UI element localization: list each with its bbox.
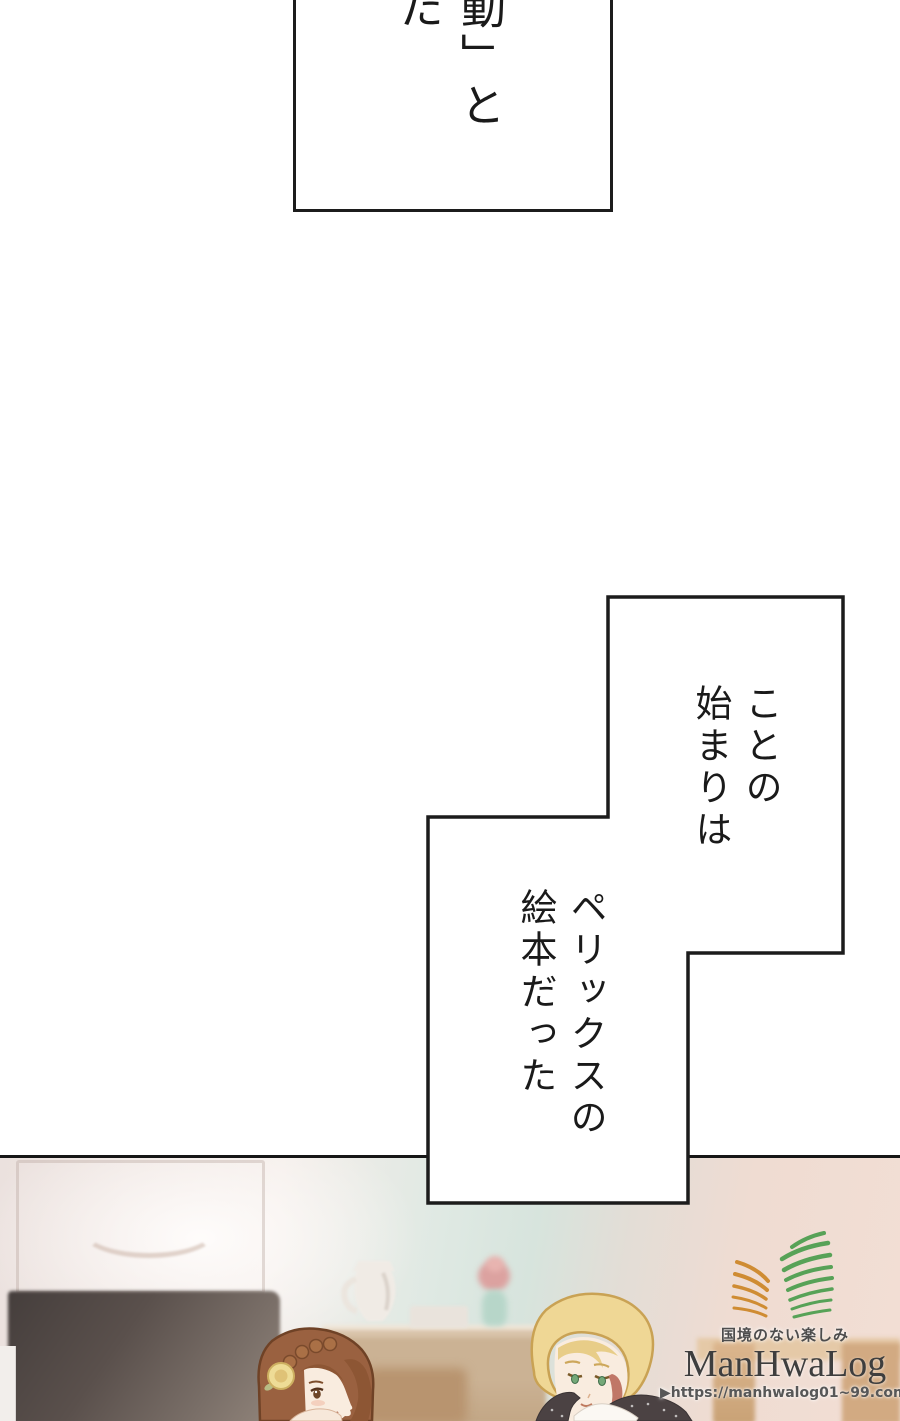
webtoon-page: 国境のない楽しみ ManHwaLog ▶https://manhwalog01~… bbox=[0, 0, 900, 1421]
dialogue-text-upper: ことの 始まりは bbox=[685, 684, 785, 884]
white-dresser-edge bbox=[0, 1346, 16, 1421]
wall-wreath-decoration bbox=[80, 1202, 218, 1258]
foreground-chair-blur bbox=[365, 1368, 467, 1421]
stacked-plates bbox=[410, 1306, 468, 1328]
teal-vase bbox=[482, 1290, 507, 1326]
watermark-brand: ManHwaLog bbox=[655, 1342, 900, 1386]
dark-furniture bbox=[8, 1291, 280, 1421]
dialogue-text-lower: ペリックスの 絵本だった bbox=[510, 888, 610, 1158]
manhwalog-logo-icon bbox=[715, 1225, 845, 1325]
watermark-url: ▶https://manhwalog01~99.com◀ bbox=[660, 1385, 900, 1401]
dialogue-text-top: 動」と た bbox=[386, 0, 510, 244]
pink-flower-highlight bbox=[486, 1256, 504, 1272]
